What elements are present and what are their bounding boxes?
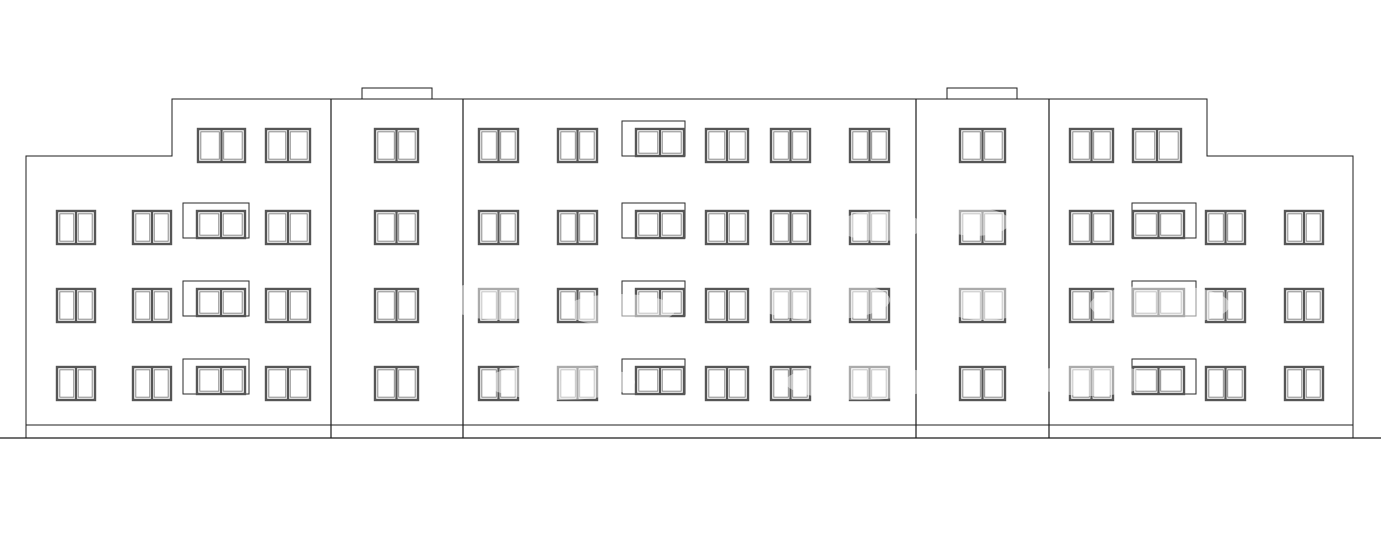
- window: [57, 367, 95, 400]
- window: [266, 289, 310, 322]
- balcony-window: [622, 203, 685, 238]
- window: [133, 367, 171, 400]
- window: [375, 129, 418, 162]
- watermark-blob: [1090, 285, 1230, 325]
- window: [479, 129, 518, 162]
- window: [375, 367, 418, 400]
- watermark-blob: [785, 364, 935, 400]
- roof-parapet: [947, 88, 1017, 99]
- window: [706, 129, 748, 162]
- window: [850, 129, 889, 162]
- window: [266, 367, 310, 400]
- window: [771, 129, 810, 162]
- building-elevation-svg: [0, 0, 1381, 546]
- window: [1206, 211, 1245, 244]
- window: [558, 129, 597, 162]
- watermark-blob: [838, 211, 922, 241]
- window: [1133, 129, 1181, 162]
- watermark-blob: [935, 280, 1035, 320]
- window: [706, 211, 748, 244]
- watermark-blob: [750, 280, 890, 320]
- window: [57, 289, 95, 322]
- window: [133, 289, 171, 322]
- window: [266, 129, 310, 162]
- window: [1070, 211, 1113, 244]
- window: [57, 211, 95, 244]
- window: [706, 367, 748, 400]
- window: [479, 211, 518, 244]
- window: [706, 289, 748, 322]
- roof-parapet: [362, 88, 432, 99]
- balcony-window: [183, 203, 249, 238]
- paper-background: [0, 0, 1381, 546]
- window: [1285, 211, 1323, 244]
- balcony-window: [1132, 203, 1196, 238]
- window: [198, 129, 245, 162]
- watermark-blob: [565, 294, 675, 326]
- balcony-window: [622, 121, 685, 156]
- watermark-blob: [485, 364, 635, 400]
- window: [1206, 367, 1245, 400]
- elevation-drawing-canvas: [0, 0, 1381, 546]
- window: [266, 211, 310, 244]
- watermark-blob: [1030, 364, 1150, 396]
- window: [558, 211, 597, 244]
- balcony-window: [622, 359, 685, 394]
- window: [1285, 367, 1323, 400]
- watermark-blob: [445, 280, 555, 320]
- window: [771, 211, 810, 244]
- window: [1070, 129, 1113, 162]
- watermark-blob: [940, 208, 1010, 236]
- window: [1285, 289, 1323, 322]
- window: [960, 129, 1005, 162]
- window: [375, 211, 418, 244]
- window: [375, 289, 418, 322]
- window: [133, 211, 171, 244]
- balcony-window: [183, 359, 249, 394]
- window: [960, 367, 1005, 400]
- balcony-window: [183, 281, 249, 316]
